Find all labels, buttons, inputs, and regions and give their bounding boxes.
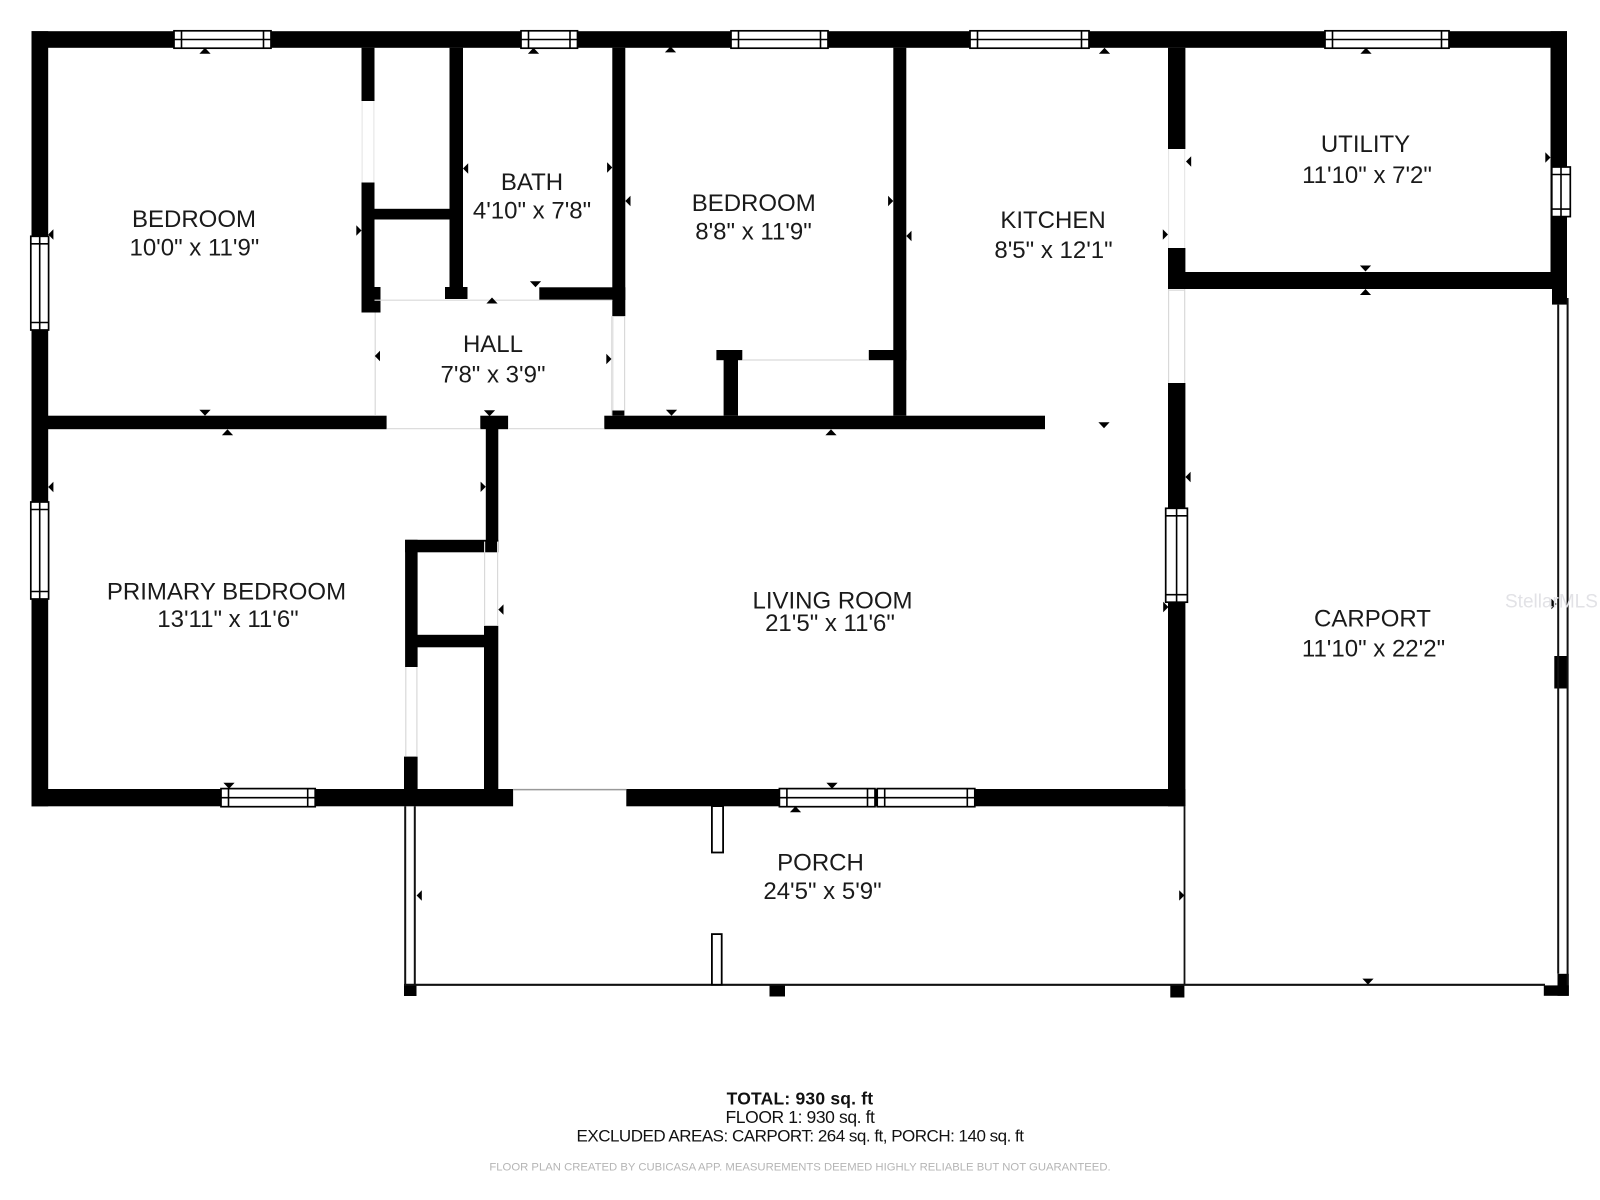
svg-text:TOTAL: 930 sq. ft: TOTAL: 930 sq. ft — [727, 1089, 874, 1109]
svg-text:BEDROOM: BEDROOM — [692, 190, 816, 217]
svg-text:UTILITY: UTILITY — [1321, 131, 1410, 158]
svg-text:8'8" x 11'9": 8'8" x 11'9" — [695, 219, 812, 246]
svg-text:PORCH: PORCH — [777, 850, 864, 877]
svg-text:FLOOR 1: 930 sq. ft: FLOOR 1: 930 sq. ft — [726, 1107, 876, 1127]
svg-text:HALL: HALL — [463, 331, 523, 358]
svg-text:4'10" x 7'8": 4'10" x 7'8" — [473, 198, 591, 225]
svg-text:11'10" x 7'2": 11'10" x 7'2" — [1302, 162, 1432, 189]
svg-text:BEDROOM: BEDROOM — [132, 206, 256, 233]
svg-text:7'8" x 3'9": 7'8" x 3'9" — [441, 362, 546, 389]
svg-text:CARPORT: CARPORT — [1314, 605, 1431, 632]
svg-text:KITCHEN: KITCHEN — [1000, 207, 1105, 234]
svg-text:21'5" x 11'6": 21'5" x 11'6" — [765, 610, 895, 637]
svg-text:10'0" x 11'9": 10'0" x 11'9" — [129, 235, 259, 262]
svg-text:11'10" x 22'2": 11'10" x 22'2" — [1302, 635, 1445, 662]
svg-text:PRIMARY BEDROOM: PRIMARY BEDROOM — [107, 579, 346, 606]
svg-text:BATH: BATH — [501, 169, 563, 196]
svg-text:FLOOR PLAN CREATED BY CUBICASA: FLOOR PLAN CREATED BY CUBICASA APP. MEAS… — [489, 1162, 1110, 1174]
svg-text:13'11" x 11'6": 13'11" x 11'6" — [157, 606, 298, 633]
svg-text:8'5" x 12'1": 8'5" x 12'1" — [994, 237, 1112, 264]
svg-text:24'5" x 5'9": 24'5" x 5'9" — [763, 878, 881, 905]
svg-text:StellarMLS: StellarMLS — [1505, 592, 1598, 613]
svg-text:EXCLUDED AREAS: CARPORT: 264 s: EXCLUDED AREAS: CARPORT: 264 sq. ft, POR… — [577, 1127, 1025, 1146]
